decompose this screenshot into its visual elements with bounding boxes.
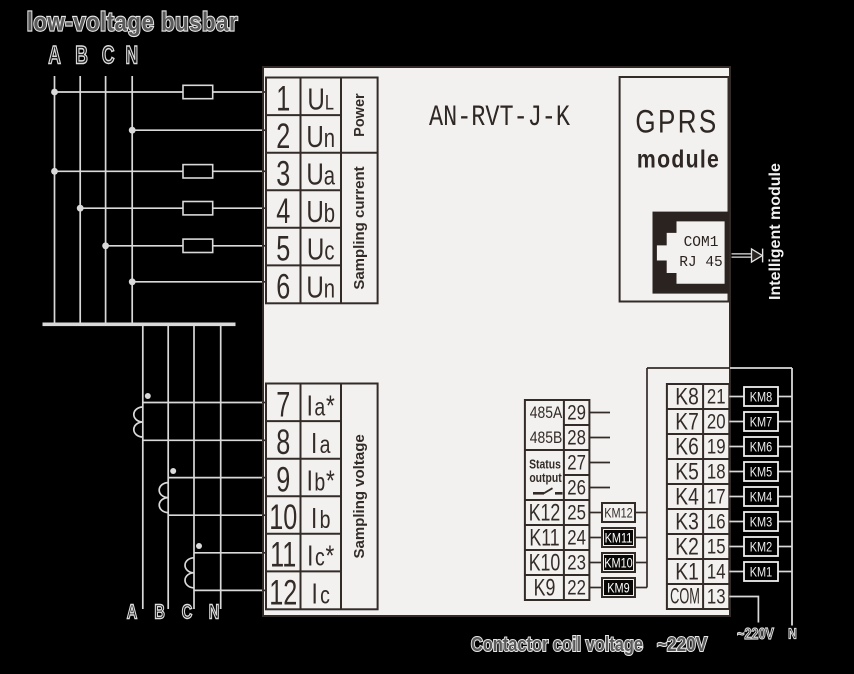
svg-text:COM: COM <box>670 584 700 608</box>
svg-text:3: 3 <box>276 155 290 194</box>
svg-text:K5: K5 <box>675 457 698 485</box>
svg-text:485A: 485A <box>530 404 563 423</box>
svg-text:13: 13 <box>707 586 726 609</box>
svg-text:N: N <box>125 40 138 69</box>
svg-text:18: 18 <box>707 461 726 484</box>
svg-text:7: 7 <box>276 385 290 424</box>
svg-text:N: N <box>788 625 797 642</box>
svg-text:Intelligent module: Intelligent module <box>767 163 784 300</box>
svg-text:module: module <box>637 145 720 173</box>
svg-text:KM6: KM6 <box>750 439 772 455</box>
svg-text:26: 26 <box>567 477 586 500</box>
svg-text:C: C <box>102 40 115 69</box>
svg-text:29: 29 <box>567 402 586 425</box>
svg-text:17: 17 <box>707 486 726 509</box>
svg-text:K4: K4 <box>675 482 698 510</box>
svg-text:K11: K11 <box>529 525 559 551</box>
svg-text:Ua: Ua <box>306 157 335 192</box>
svg-text:1: 1 <box>276 79 290 118</box>
svg-text:27: 27 <box>567 452 586 475</box>
svg-text:K7: K7 <box>675 407 698 435</box>
svg-text:15: 15 <box>707 536 726 559</box>
svg-text:N: N <box>209 600 220 623</box>
svg-text:KM8: KM8 <box>750 389 772 405</box>
svg-text:K10: K10 <box>529 550 561 576</box>
svg-text:C: C <box>182 600 193 623</box>
svg-text:Ic*: Ic* <box>307 539 334 572</box>
svg-text:KM7: KM7 <box>750 414 772 430</box>
svg-text:12: 12 <box>269 573 297 612</box>
svg-text:Un: Un <box>306 269 335 304</box>
svg-text:21: 21 <box>707 386 726 409</box>
svg-text:Ib: Ib <box>311 501 330 534</box>
svg-text:6: 6 <box>276 267 290 306</box>
svg-text:28: 28 <box>567 427 586 450</box>
svg-text:K1: K1 <box>675 557 698 585</box>
svg-text:K8: K8 <box>675 382 698 410</box>
svg-text:K3: K3 <box>675 507 698 535</box>
svg-text:output: output <box>529 471 561 485</box>
svg-text:Sampling voltage: Sampling voltage <box>351 434 368 558</box>
svg-text:K12: K12 <box>529 500 561 526</box>
svg-text:Power: Power <box>352 93 368 137</box>
svg-text:10: 10 <box>269 498 297 537</box>
svg-text:K2: K2 <box>675 532 698 560</box>
svg-text:RJ 45: RJ 45 <box>679 255 723 271</box>
svg-text:20: 20 <box>707 411 726 434</box>
svg-text:K6: K6 <box>675 432 698 460</box>
svg-text:2: 2 <box>276 117 290 156</box>
svg-text:A: A <box>127 600 138 623</box>
svg-text:B: B <box>154 600 165 623</box>
svg-text:AN-RVT-J-K: AN-RVT-J-K <box>429 101 570 135</box>
svg-text:~220V: ~220V <box>737 626 775 643</box>
svg-text:Uc: Uc <box>307 232 335 267</box>
svg-text:485B: 485B <box>530 429 563 448</box>
svg-text:KM10: KM10 <box>604 555 633 571</box>
svg-text:A: A <box>48 40 61 69</box>
svg-text:16: 16 <box>707 511 726 534</box>
svg-text:KM5: KM5 <box>750 464 772 480</box>
svg-text:KM11: KM11 <box>605 530 633 546</box>
svg-text:K9: K9 <box>534 575 556 601</box>
svg-text:5: 5 <box>276 230 290 269</box>
svg-text:Status: Status <box>529 457 561 471</box>
svg-text:25: 25 <box>567 502 586 525</box>
svg-text:Un: Un <box>306 119 335 154</box>
svg-text:KM3: KM3 <box>750 514 772 530</box>
svg-text:KM2: KM2 <box>750 539 772 555</box>
svg-text:Sampling current: Sampling current <box>351 166 368 289</box>
svg-text:KM9: KM9 <box>607 580 629 596</box>
svg-text:KM1: KM1 <box>750 564 772 580</box>
svg-text:Contactor coil voltage: Contactor coil voltage <box>471 632 643 655</box>
svg-text:Ub: Ub <box>306 194 335 229</box>
svg-text:KM4: KM4 <box>750 489 772 505</box>
svg-text:low-voltage busbar: low-voltage busbar <box>27 8 238 37</box>
svg-text:24: 24 <box>567 527 586 550</box>
svg-text:9: 9 <box>276 461 290 500</box>
svg-text:B: B <box>75 40 88 69</box>
svg-text:11: 11 <box>270 536 296 575</box>
svg-text:19: 19 <box>707 436 726 459</box>
svg-text:22: 22 <box>567 577 586 600</box>
svg-text:~220V: ~220V <box>657 633 708 656</box>
svg-text:Ic: Ic <box>312 577 330 610</box>
svg-text:Ia: Ia <box>311 426 331 459</box>
svg-text:Ib*: Ib* <box>307 464 335 497</box>
svg-text:8: 8 <box>276 423 290 462</box>
svg-text:COM1: COM1 <box>684 235 719 251</box>
svg-text:4: 4 <box>276 192 290 231</box>
svg-text:KM12: KM12 <box>604 505 633 521</box>
svg-text:Ia*: Ia* <box>307 389 335 422</box>
svg-text:23: 23 <box>567 552 586 575</box>
svg-text:GPRS: GPRS <box>635 104 718 140</box>
svg-text:14: 14 <box>707 561 726 584</box>
